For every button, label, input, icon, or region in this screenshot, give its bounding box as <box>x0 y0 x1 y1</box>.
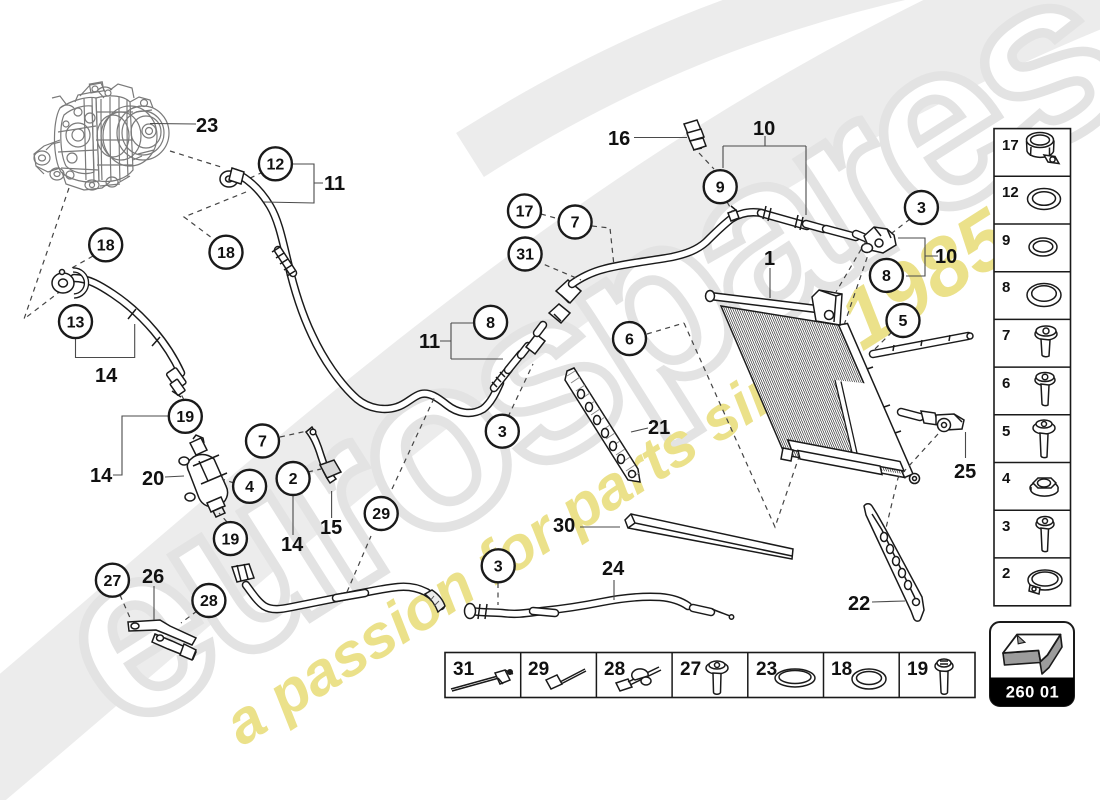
svg-text:19: 19 <box>907 659 928 680</box>
svg-text:23: 23 <box>196 115 218 137</box>
svg-text:5: 5 <box>1002 423 1010 440</box>
svg-text:11: 11 <box>419 331 440 353</box>
svg-text:1: 1 <box>764 248 775 270</box>
svg-text:6: 6 <box>1002 375 1010 392</box>
svg-text:19: 19 <box>176 409 194 426</box>
svg-text:22: 22 <box>848 593 870 615</box>
svg-text:28: 28 <box>200 593 218 610</box>
svg-text:10: 10 <box>753 118 775 140</box>
svg-text:29: 29 <box>528 659 549 680</box>
svg-text:29: 29 <box>372 506 390 523</box>
svg-text:260 01: 260 01 <box>1006 684 1059 702</box>
svg-text:12: 12 <box>1002 184 1019 201</box>
svg-text:21: 21 <box>648 417 670 439</box>
svg-text:18: 18 <box>217 245 235 262</box>
svg-text:2: 2 <box>289 471 298 488</box>
svg-text:18: 18 <box>831 659 852 680</box>
svg-text:2: 2 <box>1002 565 1010 582</box>
svg-text:10: 10 <box>935 246 957 268</box>
svg-text:28: 28 <box>604 659 625 680</box>
svg-text:24: 24 <box>602 558 625 580</box>
svg-text:16: 16 <box>608 128 630 150</box>
svg-text:26: 26 <box>142 566 164 588</box>
svg-text:9: 9 <box>716 179 725 196</box>
svg-text:11: 11 <box>324 173 345 195</box>
svg-text:19: 19 <box>222 531 240 548</box>
svg-text:13: 13 <box>67 314 85 331</box>
svg-text:31: 31 <box>516 247 534 264</box>
svg-text:17: 17 <box>1002 137 1019 154</box>
svg-text:6: 6 <box>625 331 634 348</box>
svg-text:15: 15 <box>320 517 342 539</box>
svg-text:18: 18 <box>97 238 115 255</box>
svg-text:31: 31 <box>453 659 475 680</box>
svg-text:3: 3 <box>917 200 926 217</box>
svg-text:3: 3 <box>1002 518 1010 535</box>
svg-text:14: 14 <box>90 465 113 487</box>
svg-text:8: 8 <box>882 268 891 285</box>
svg-text:20: 20 <box>142 468 164 490</box>
svg-text:25: 25 <box>954 461 976 483</box>
svg-text:14: 14 <box>281 534 304 556</box>
svg-text:7: 7 <box>1002 327 1010 344</box>
svg-text:27: 27 <box>104 573 122 590</box>
svg-text:3: 3 <box>498 424 507 441</box>
svg-text:8: 8 <box>1002 279 1010 296</box>
svg-text:3: 3 <box>494 559 503 576</box>
svg-text:5: 5 <box>899 313 908 330</box>
svg-text:4: 4 <box>1002 470 1011 487</box>
svg-text:8: 8 <box>486 315 495 332</box>
svg-text:12: 12 <box>267 157 285 174</box>
svg-text:7: 7 <box>571 215 580 232</box>
svg-text:4: 4 <box>245 479 254 496</box>
svg-text:9: 9 <box>1002 232 1010 249</box>
svg-text:17: 17 <box>516 204 534 221</box>
svg-text:7: 7 <box>258 434 267 451</box>
svg-text:23: 23 <box>756 659 777 680</box>
svg-text:30: 30 <box>553 515 575 537</box>
svg-text:14: 14 <box>95 365 118 387</box>
svg-text:27: 27 <box>680 659 701 680</box>
